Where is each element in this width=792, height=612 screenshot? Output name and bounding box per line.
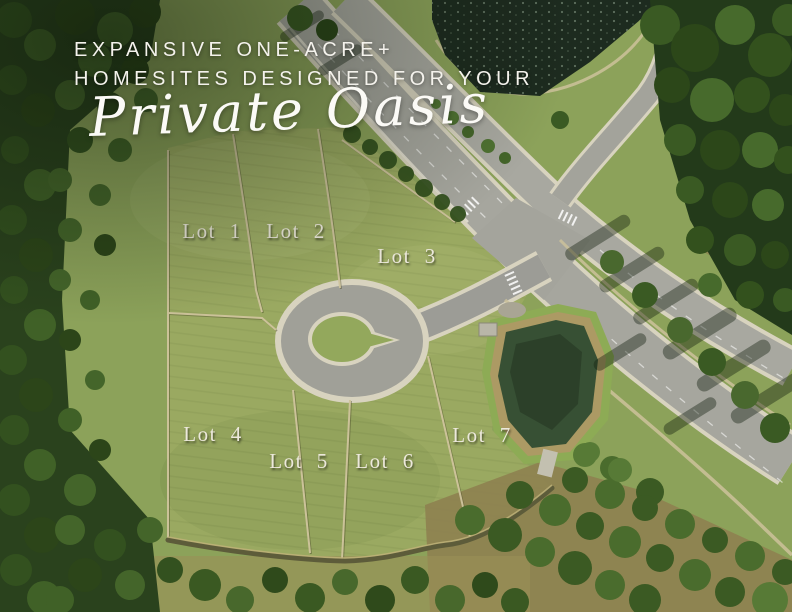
riprap-rocks	[498, 302, 526, 318]
lot-label-4: Lot 4	[183, 422, 242, 446]
cul-de-sac-road	[275, 279, 429, 403]
culvert-structure	[479, 323, 497, 336]
lot-label-6: Lot 6	[355, 449, 414, 473]
grass-island	[312, 316, 372, 362]
lot-label-7: Lot 7	[452, 423, 511, 447]
lot-label-2: Lot 2	[266, 219, 325, 243]
lot-label-3: Lot 3	[377, 244, 436, 268]
lot-label-1: Lot 1	[182, 219, 241, 243]
headline-line1: EXPANSIVE ONE-ACRE+	[74, 36, 534, 65]
lot-label-5: Lot 5	[269, 449, 328, 473]
aerial-site-plan: Lot 1 Lot 2 Lot 3 Lot 4 Lot 5 Lot 6 Lot …	[0, 0, 792, 612]
